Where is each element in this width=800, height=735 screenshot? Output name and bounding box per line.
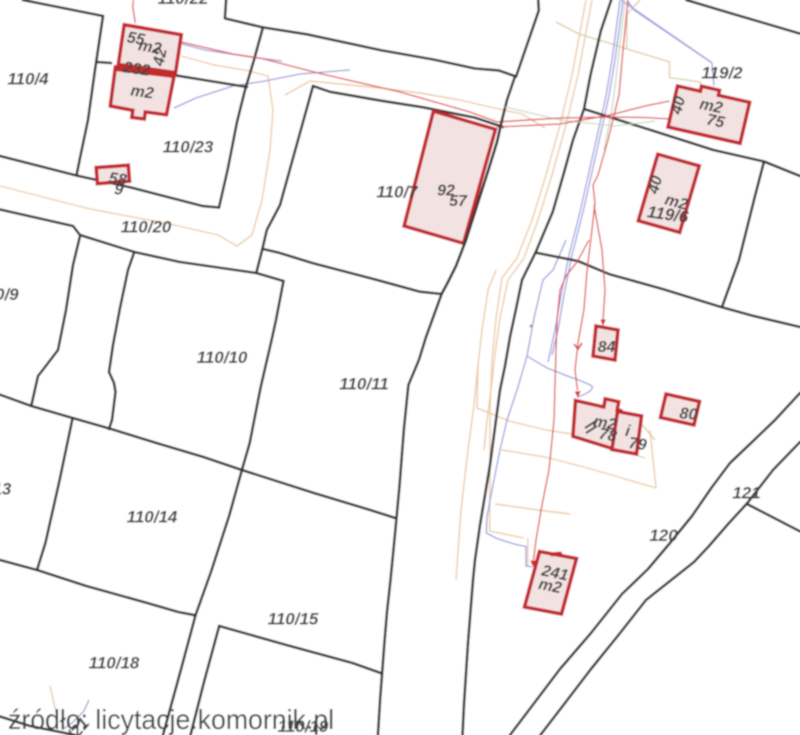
svg-text:110/7: 110/7 — [376, 183, 419, 202]
svg-text:źródło: licytacje.komornik.pl: źródło: licytacje.komornik.pl — [8, 704, 334, 735]
svg-text:84: 84 — [598, 339, 616, 356]
svg-text:79: 79 — [628, 435, 648, 454]
svg-text:78: 78 — [598, 426, 619, 446]
svg-text:120: 120 — [649, 526, 678, 545]
svg-text:80: 80 — [679, 405, 698, 423]
svg-text:110/15: 110/15 — [268, 610, 319, 629]
svg-text:121: 121 — [732, 484, 760, 503]
svg-text:110/18: 110/18 — [89, 654, 140, 673]
svg-text:110/4: 110/4 — [7, 70, 49, 89]
svg-text:110/20: 110/20 — [121, 218, 172, 237]
svg-text:110/22: 110/22 — [158, 0, 209, 8]
svg-text:119/2: 119/2 — [701, 64, 743, 83]
svg-text:110/13: 110/13 — [0, 480, 12, 499]
svg-text:110/10: 110/10 — [197, 348, 248, 367]
svg-text:110/23: 110/23 — [163, 138, 214, 157]
svg-text:m2: m2 — [129, 83, 154, 103]
svg-text:110/9: 110/9 — [0, 285, 19, 304]
svg-text:57: 57 — [449, 193, 468, 210]
svg-text:110/11: 110/11 — [339, 375, 388, 394]
svg-text:110/14: 110/14 — [127, 508, 178, 527]
